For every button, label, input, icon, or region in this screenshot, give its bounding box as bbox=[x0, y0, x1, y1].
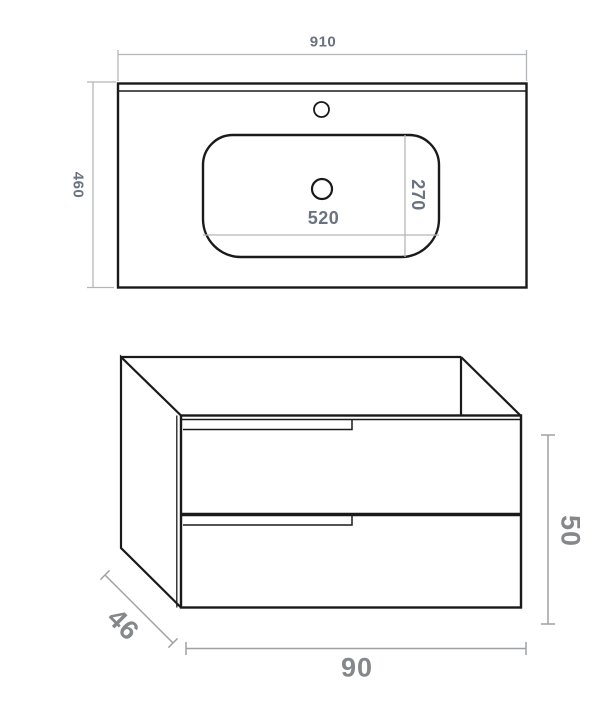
dim-label-basin-depth: 270 bbox=[409, 179, 427, 211]
dim-label-cabinet-height: 50 bbox=[556, 515, 583, 547]
sink-top-view bbox=[118, 84, 527, 288]
cabinet-front-face bbox=[181, 416, 521, 608]
cabinet-dimension-lines bbox=[100, 435, 555, 655]
cabinet-right-panel-top-edge bbox=[461, 357, 522, 417]
dim-label-cabinet-width: 90 bbox=[341, 655, 373, 682]
faucet-hole bbox=[314, 102, 329, 117]
cabinet-left-panel bbox=[121, 357, 181, 608]
drawer2-handle-groove bbox=[183, 516, 352, 525]
dim-label-overall-width: 910 bbox=[310, 35, 337, 50]
basin-outline bbox=[203, 135, 439, 257]
dim-label-overall-depth: 460 bbox=[70, 172, 85, 199]
drain-hole bbox=[312, 179, 332, 199]
cabinet-view bbox=[121, 357, 522, 608]
top-view-dimension-lines bbox=[87, 50, 527, 288]
technical-drawing: 910 460 520 270 90 46 50 bbox=[0, 0, 600, 727]
drawer1-handle-groove bbox=[183, 420, 352, 430]
dim-label-basin-width: 520 bbox=[308, 209, 340, 227]
drawing-linework bbox=[0, 0, 600, 727]
